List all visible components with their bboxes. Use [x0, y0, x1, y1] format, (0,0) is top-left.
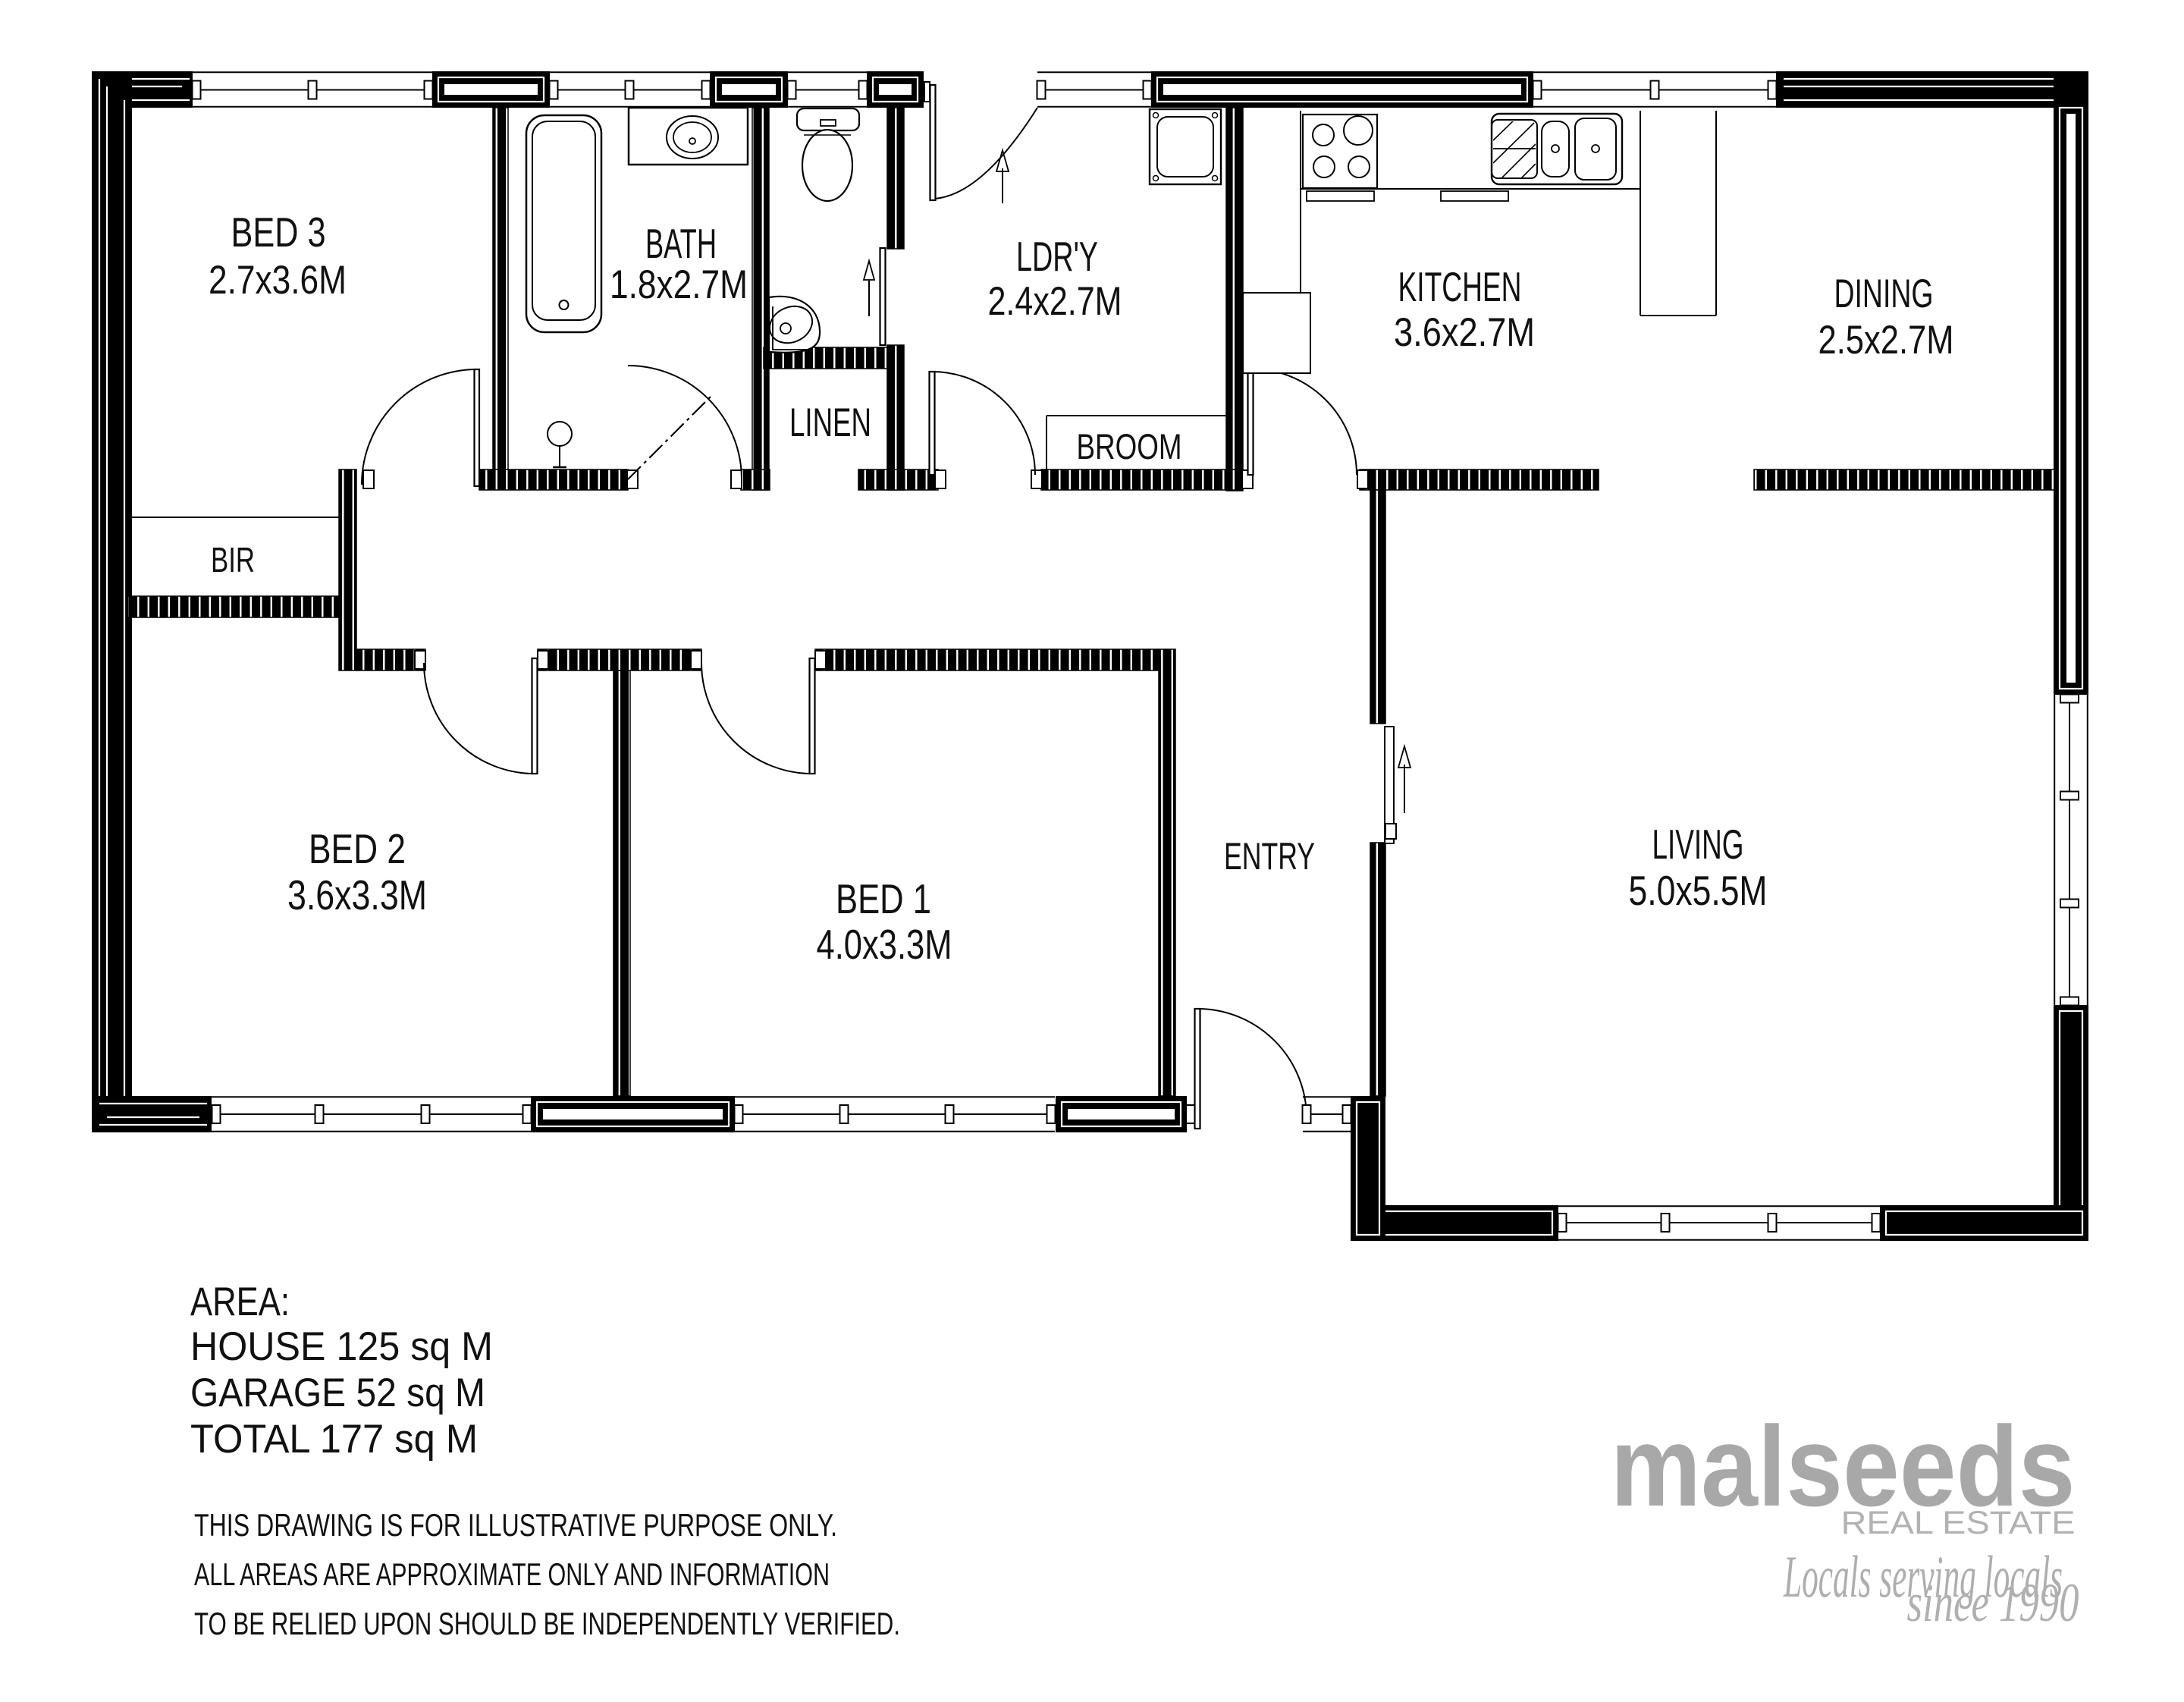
svg-text:3.6x3.3M: 3.6x3.3M — [287, 871, 427, 919]
svg-text:5.0x5.5M: 5.0x5.5M — [1629, 867, 1768, 914]
svg-text:2.4x2.7M: 2.4x2.7M — [988, 279, 1122, 324]
svg-text:GARAGE 52 sq M: GARAGE 52 sq M — [190, 1371, 485, 1415]
svg-text:LINEN: LINEN — [789, 400, 871, 445]
svg-text:TOTAL 177 sq M: TOTAL 177 sq M — [190, 1417, 478, 1462]
svg-text:BATH: BATH — [645, 220, 717, 267]
svg-text:BED 3: BED 3 — [231, 209, 326, 256]
svg-text:REAL ESTATE: REAL ESTATE — [1841, 1505, 2076, 1541]
svg-text:BROOM: BROOM — [1077, 426, 1182, 466]
svg-text:ALL AREAS ARE APPROXIMATE ONLY: ALL AREAS ARE APPROXIMATE ONLY AND INFOR… — [194, 1556, 830, 1592]
svg-text:AREA:: AREA: — [190, 1280, 290, 1324]
svg-text:TO BE RELIED UPON SHOULD BE IN: TO BE RELIED UPON SHOULD BE INDEPENDENTL… — [194, 1606, 900, 1641]
svg-text:BIR: BIR — [211, 540, 255, 579]
svg-text:1.8x2.7M: 1.8x2.7M — [610, 262, 748, 307]
svg-text:ENTRY: ENTRY — [1224, 835, 1315, 878]
svg-text:KITCHEN: KITCHEN — [1398, 263, 1522, 310]
svg-text:HOUSE 125 sq M: HOUSE 125 sq M — [190, 1324, 493, 1369]
svg-text:2.7x3.6M: 2.7x3.6M — [209, 258, 347, 303]
svg-text:DINING: DINING — [1834, 272, 1934, 316]
svg-text:BED 2: BED 2 — [309, 825, 406, 872]
svg-text:4.0x3.3M: 4.0x3.3M — [817, 921, 952, 968]
svg-text:3.6x2.7M: 3.6x2.7M — [1394, 310, 1535, 355]
svg-text:THIS DRAWING IS FOR ILLUSTRATI: THIS DRAWING IS FOR ILLUSTRATIVE PURPOSE… — [194, 1507, 837, 1543]
svg-text:LIVING: LIVING — [1652, 821, 1744, 868]
svg-text:2.5x2.7M: 2.5x2.7M — [1818, 318, 1954, 363]
svg-text:BED 1: BED 1 — [836, 875, 931, 922]
svg-text:since 1990: since 1990 — [1907, 1572, 2079, 1633]
svg-text:LDR'Y: LDR'Y — [1016, 233, 1098, 280]
